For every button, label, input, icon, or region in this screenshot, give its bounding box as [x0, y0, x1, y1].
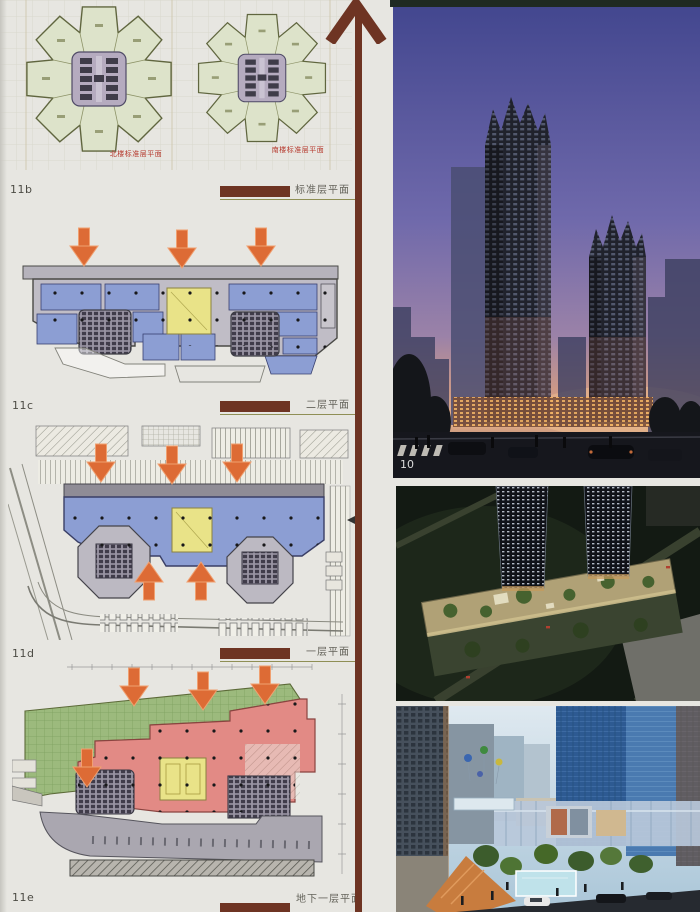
photo-number: 10 — [400, 458, 414, 471]
top-corridor — [23, 266, 338, 279]
photo-dusk-towers: 10 — [393, 7, 700, 478]
basement-floor-plan — [12, 664, 353, 892]
entry-arrow — [168, 230, 196, 268]
caption-bar — [220, 186, 290, 197]
parking-ramp — [40, 812, 322, 862]
photo-dusk-towers-art — [393, 7, 700, 478]
caption-text: 二层平面 — [306, 401, 356, 414]
south-plan-caption: 南楼标准层平面 — [250, 145, 346, 155]
timeline-rule — [355, 8, 362, 912]
caption-row-second-floor: 二层平面 — [220, 401, 356, 415]
entry-arrow — [247, 228, 275, 266]
caption-row-first-floor: 一层平面 — [220, 648, 356, 662]
photo-column-top-strip — [390, 0, 700, 7]
section-index-11b: 11b — [10, 183, 32, 196]
caption-text: 标准层平面 — [295, 186, 356, 199]
entry-corridor — [64, 484, 324, 497]
section-index-11c: 11c — [12, 399, 34, 412]
caption-bar — [220, 903, 290, 912]
page-edge-shade — [0, 0, 7, 912]
caption-text-basement: 地下一层平面 — [296, 890, 362, 905]
entry-arrow — [70, 228, 98, 266]
north-plan-caption: 北楼标准层平面 — [88, 149, 184, 159]
lit-podium — [453, 397, 653, 427]
retaining-wall-hatch — [70, 860, 314, 876]
photo-night-aerial — [396, 486, 700, 701]
skybridge — [454, 798, 514, 810]
second-floor-plan — [15, 226, 350, 398]
caption-text: 一层平面 — [306, 648, 356, 661]
section-index-11d: 11d — [12, 647, 34, 660]
tower-south-top — [584, 486, 632, 576]
reflecting-pool — [516, 871, 576, 896]
standard-plan-north — [24, 4, 174, 154]
standard-plan-south — [196, 12, 328, 144]
north-arrow-icon — [324, 0, 388, 44]
caption-bar — [220, 401, 290, 412]
caption-bar — [220, 648, 290, 659]
magazine-page: 北楼标准层平面 南楼标准层平面 11b 11c 11d 11e 标准层平面 二层… — [0, 0, 700, 912]
photo-day-plaza — [396, 706, 700, 912]
tower-north-top — [496, 486, 548, 588]
entry-arrow-up — [187, 562, 215, 600]
caption-row-standard-floor: 标准层平面 — [220, 186, 356, 200]
photo-day-plaza-art — [396, 706, 700, 912]
section-index-11e: 11e — [12, 891, 34, 904]
first-floor-plan — [8, 424, 355, 640]
photo-night-aerial-art — [396, 486, 700, 701]
